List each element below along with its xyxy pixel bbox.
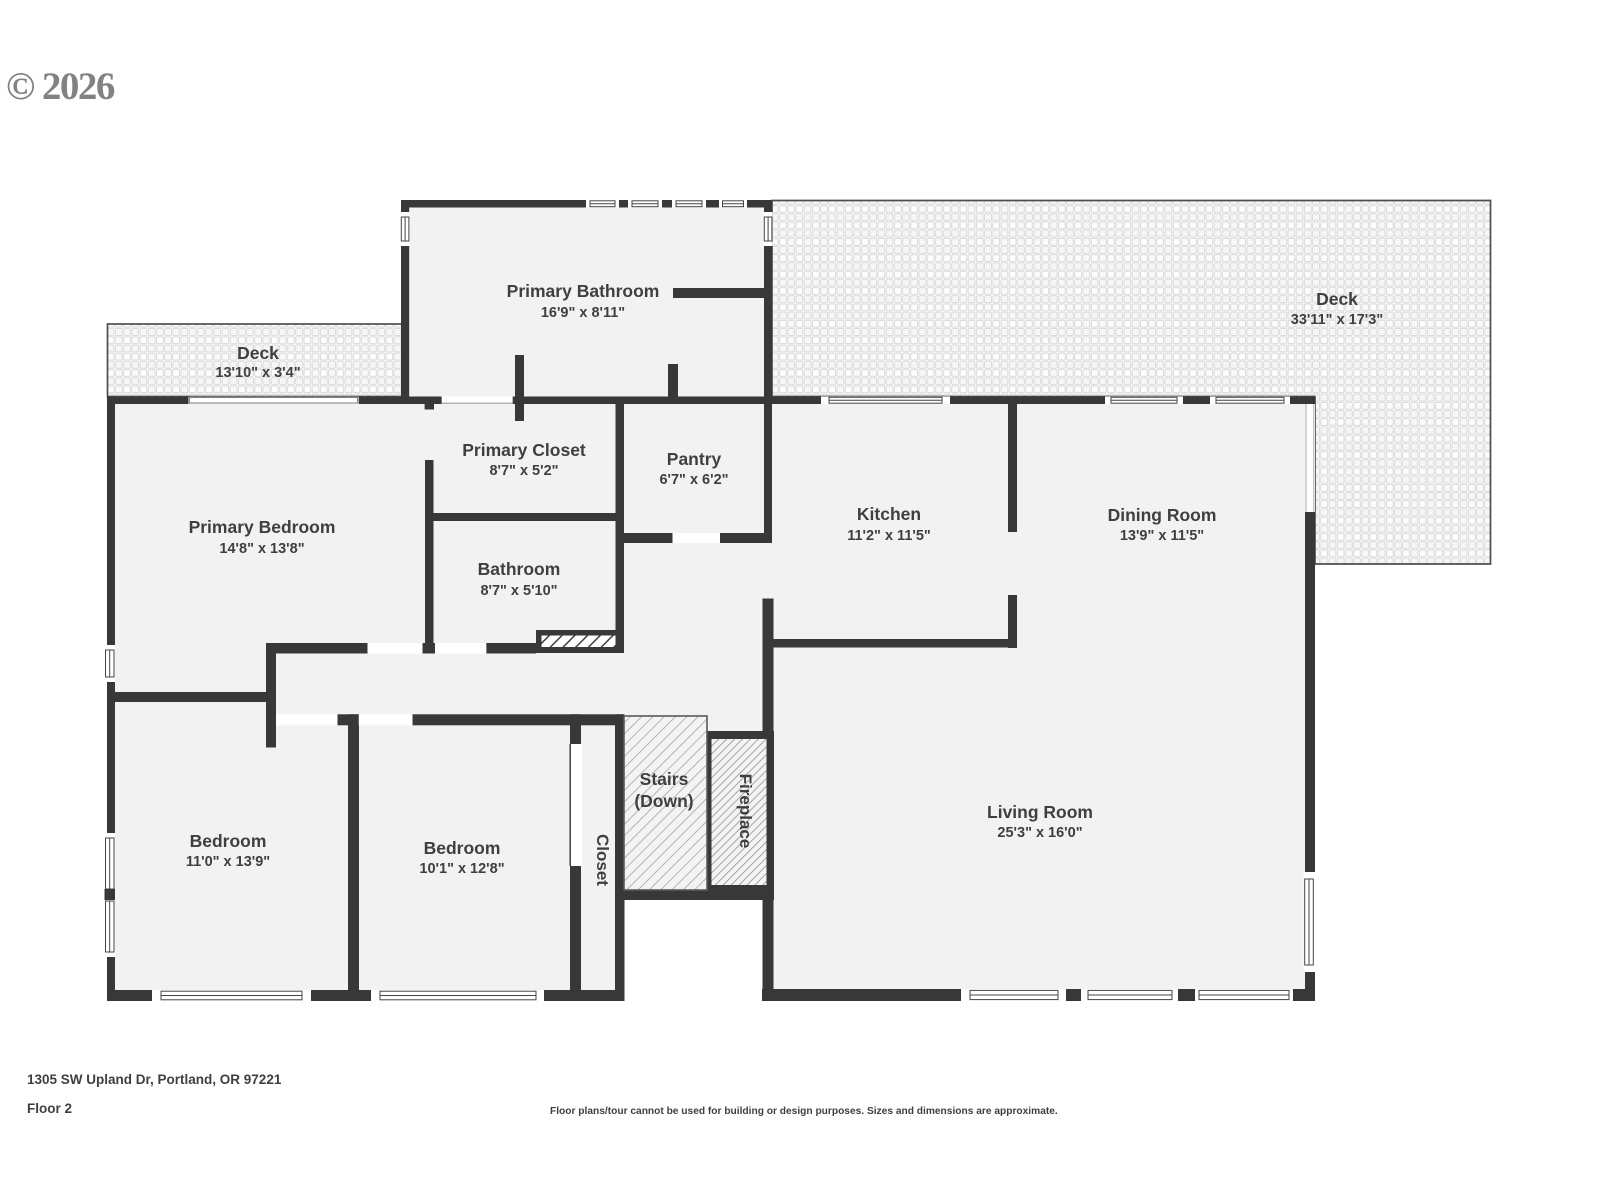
svg-text:Bathroom: Bathroom	[478, 559, 561, 579]
svg-text:Primary Closet: Primary Closet	[462, 440, 586, 460]
svg-text:13'10" x 3'4": 13'10" x 3'4"	[215, 365, 300, 381]
svg-text:8'7" x 5'10": 8'7" x 5'10"	[480, 583, 557, 599]
svg-text:16'9" x 8'11": 16'9" x 8'11"	[541, 305, 625, 321]
svg-text:13'9" x 11'5": 13'9" x 11'5"	[1120, 528, 1204, 544]
svg-text:Deck: Deck	[1316, 289, 1358, 309]
svg-text:1305 SW Upland Dr, Portland, O: 1305 SW Upland Dr, Portland, OR 97221	[27, 1072, 282, 1087]
svg-text:14'8" x 13'8": 14'8" x 13'8"	[219, 541, 304, 557]
svg-text:Closet: Closet	[593, 834, 612, 886]
svg-text:Floor 2: Floor 2	[27, 1101, 72, 1116]
svg-text:Pantry: Pantry	[667, 449, 722, 469]
svg-text:11'0" x 13'9": 11'0" x 13'9"	[186, 854, 270, 870]
svg-text:25'3" x 16'0": 25'3" x 16'0"	[997, 825, 1082, 841]
svg-text:Dining Room: Dining Room	[1108, 505, 1217, 525]
svg-text:Floor plans/tour cannot be use: Floor plans/tour cannot be used for buil…	[550, 1106, 1058, 1117]
svg-text:Deck: Deck	[237, 343, 279, 363]
svg-text:Stairs: Stairs	[640, 769, 689, 789]
svg-text:© 2026: © 2026	[6, 65, 115, 108]
svg-text:Primary Bedroom: Primary Bedroom	[189, 517, 336, 537]
svg-text:6'7" x 6'2": 6'7" x 6'2"	[659, 472, 728, 488]
svg-text:(Down): (Down)	[634, 791, 693, 811]
svg-text:Kitchen: Kitchen	[857, 504, 921, 524]
svg-text:Fireplace: Fireplace	[736, 774, 755, 849]
svg-text:Primary Bathroom: Primary Bathroom	[507, 281, 660, 301]
svg-text:10'1" x 12'8": 10'1" x 12'8"	[419, 861, 504, 877]
svg-text:33'11" x 17'3": 33'11" x 17'3"	[1291, 312, 1383, 328]
svg-text:Bedroom: Bedroom	[190, 831, 267, 851]
svg-text:11'2" x 11'5": 11'2" x 11'5"	[847, 528, 931, 544]
svg-text:Living Room: Living Room	[987, 802, 1093, 822]
svg-text:Bedroom: Bedroom	[424, 838, 501, 858]
svg-text:8'7" x 5'2": 8'7" x 5'2"	[489, 463, 558, 479]
